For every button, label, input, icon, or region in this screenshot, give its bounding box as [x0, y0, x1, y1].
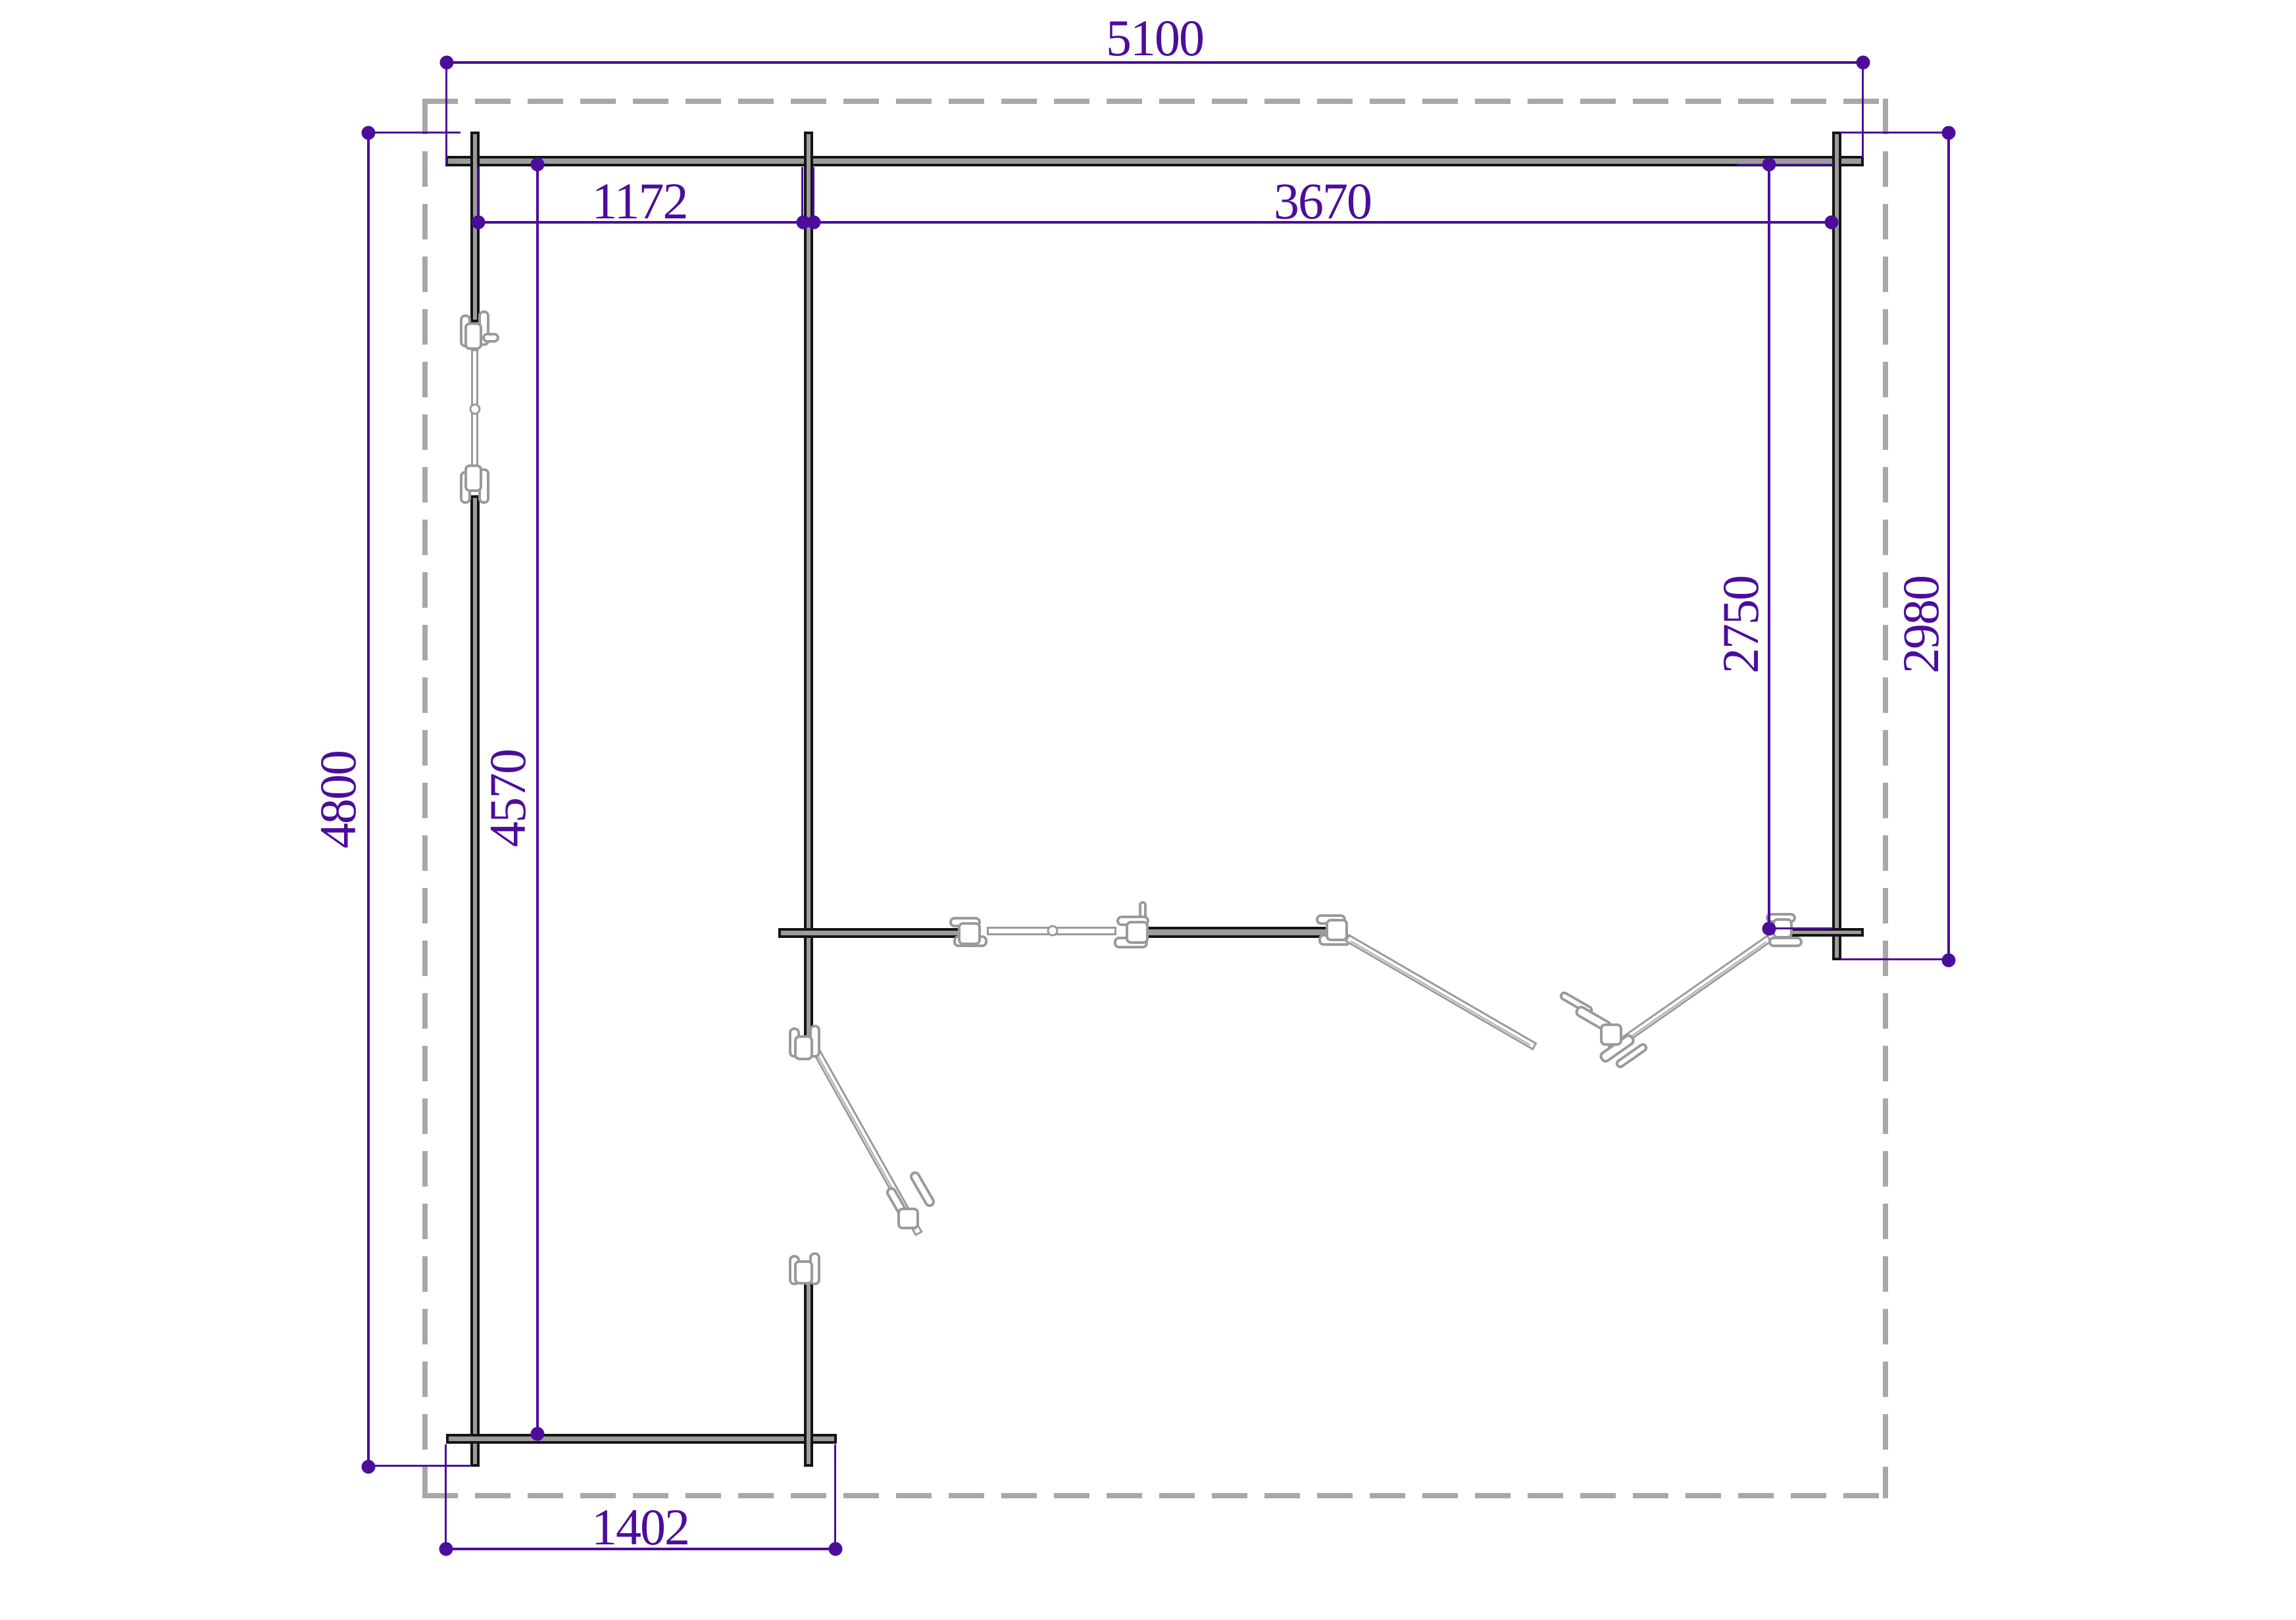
bottom-stub-hinge [794, 1260, 813, 1285]
left-wing-door-hinge [794, 1035, 813, 1060]
dim-ext [368, 132, 461, 134]
dim-ext [445, 62, 447, 164]
dim-dot [531, 158, 545, 172]
dim-ext [1769, 927, 1832, 929]
roof-outline-bottom [422, 1493, 1888, 1498]
left-window-hinge-bottom [464, 464, 482, 492]
dim-line-4570 [536, 164, 539, 1434]
dim-label-2980: 2980 [1895, 576, 1947, 674]
middle-hinge-center [1126, 921, 1149, 944]
middle-hinge-right [1326, 919, 1348, 941]
dim-ext [1840, 132, 1949, 134]
dim-dot [531, 1427, 545, 1441]
wall-interior [804, 132, 813, 1041]
roof-outline-right [1883, 99, 1888, 1498]
dim-ext [1737, 164, 1834, 166]
dim-line-2980 [1947, 133, 1950, 960]
dim-label-4800: 4800 [312, 751, 364, 848]
dim-ext [812, 167, 814, 222]
dim-ext [801, 167, 803, 222]
wall-bottom-stub [804, 1277, 813, 1467]
dim-label-5100: 5100 [1106, 12, 1203, 64]
left-window-handle-icon [482, 333, 499, 343]
dim-line-2750 [1768, 164, 1770, 929]
dim-ext [445, 1444, 447, 1549]
wall-right [1832, 132, 1841, 960]
dim-dot [1942, 954, 1956, 968]
dim-label-4570: 4570 [482, 750, 534, 847]
dim-ext [477, 167, 479, 222]
dim-line-4800 [367, 133, 370, 1467]
dim-label-3670: 3670 [1274, 176, 1371, 227]
left-window-hinge-top [464, 322, 482, 350]
wall-top [445, 156, 1864, 166]
middle-hinge-left [958, 922, 981, 945]
wall-bottom [446, 1434, 837, 1444]
middle-window-knob-icon [1047, 925, 1059, 937]
dim-ext [368, 1465, 472, 1467]
roof-outline-top [422, 99, 1888, 104]
wall-middle-left [778, 928, 962, 938]
wall-middle-center [1145, 927, 1340, 938]
floor-plan: 5100 4800 4570 1172 3670 2750 2980 1402 [0, 0, 2296, 1620]
dim-dot [362, 1460, 376, 1474]
wall-left-lower [470, 495, 480, 1467]
left-window-knob-icon [470, 404, 481, 415]
dim-label-2750: 2750 [1715, 576, 1766, 674]
folding-door-hinge [1600, 1023, 1622, 1046]
dim-label-1172: 1172 [591, 176, 687, 227]
dim-ext [1862, 62, 1864, 158]
roof-outline-left [422, 99, 428, 1498]
dim-dot [1825, 216, 1839, 230]
dim-ext [1841, 958, 1949, 960]
left-wing-door-handle [908, 1169, 937, 1209]
dim-label-1402: 1402 [591, 1502, 689, 1553]
left-wing-door-handle [897, 1208, 919, 1229]
dim-ext [834, 1444, 836, 1549]
folding-door-leaf-left [1345, 934, 1537, 1050]
